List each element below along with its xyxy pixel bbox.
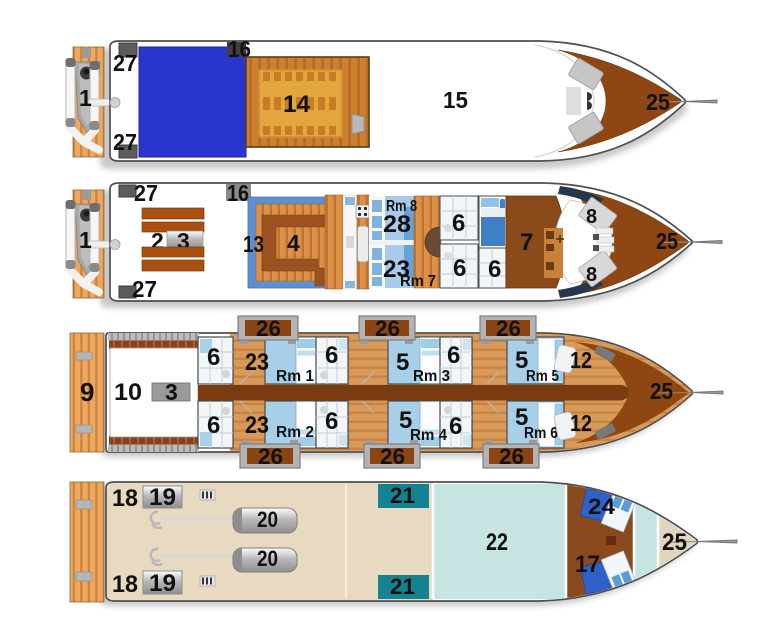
svg-text:8: 8 (586, 264, 597, 286)
svg-text:27: 27 (113, 50, 137, 76)
svg-text:25: 25 (662, 529, 687, 556)
svg-text:23: 23 (245, 412, 269, 439)
svg-text:22: 22 (486, 529, 508, 556)
svg-text:6: 6 (325, 408, 338, 435)
svg-text:20: 20 (257, 507, 278, 532)
svg-text:18: 18 (112, 485, 138, 512)
svg-text:12: 12 (570, 347, 592, 373)
svg-text:Rm 1: Rm 1 (276, 368, 314, 385)
svg-text:23: 23 (245, 349, 269, 376)
svg-text:Rm 3: Rm 3 (413, 368, 450, 385)
svg-text:19: 19 (149, 484, 176, 511)
svg-text:25: 25 (656, 228, 678, 254)
svg-text:6: 6 (488, 256, 501, 283)
svg-text:6: 6 (449, 413, 462, 440)
svg-text:Rm 5: Rm 5 (526, 368, 559, 385)
svg-text:21: 21 (390, 483, 415, 508)
svg-text:3: 3 (165, 379, 178, 405)
svg-text:26: 26 (258, 444, 283, 469)
svg-text:1: 1 (79, 85, 92, 111)
svg-text:7: 7 (520, 229, 533, 256)
svg-text:Rm 7: Rm 7 (400, 273, 436, 290)
svg-text:19: 19 (149, 570, 176, 597)
svg-text:6: 6 (325, 342, 338, 369)
svg-text:1: 1 (79, 227, 92, 253)
svg-text:27: 27 (113, 129, 137, 155)
svg-text:26: 26 (496, 316, 521, 341)
svg-text:10: 10 (114, 379, 142, 406)
svg-text:27: 27 (134, 180, 158, 206)
svg-text:26: 26 (380, 444, 405, 469)
svg-text:17: 17 (575, 551, 600, 578)
svg-text:14: 14 (283, 91, 311, 118)
svg-text:4: 4 (287, 230, 300, 256)
svg-text:26: 26 (256, 316, 281, 341)
svg-text:Rm 6: Rm 6 (524, 425, 558, 442)
svg-text:24: 24 (588, 494, 616, 519)
svg-text:18: 18 (112, 571, 138, 598)
svg-text:5: 5 (396, 349, 409, 376)
svg-text:6: 6 (447, 342, 460, 369)
svg-text:25: 25 (650, 378, 673, 404)
svg-text:26: 26 (375, 316, 400, 341)
svg-text:20: 20 (257, 546, 278, 571)
svg-text:28: 28 (383, 211, 411, 238)
svg-text:21: 21 (390, 574, 415, 599)
svg-text:6: 6 (207, 412, 220, 439)
svg-text:13: 13 (243, 231, 264, 257)
svg-text:12: 12 (570, 410, 592, 436)
svg-text:26: 26 (499, 444, 524, 469)
svg-text:16: 16 (227, 180, 249, 206)
svg-text:25: 25 (646, 89, 670, 115)
svg-text:8: 8 (586, 206, 597, 228)
svg-text:Rm 2: Rm 2 (276, 424, 314, 441)
svg-text:6: 6 (207, 344, 220, 371)
svg-text:9: 9 (80, 377, 94, 407)
svg-text:15: 15 (443, 87, 468, 113)
svg-text:6: 6 (453, 255, 466, 282)
svg-text:27: 27 (132, 276, 157, 302)
svg-text:6: 6 (452, 210, 465, 237)
